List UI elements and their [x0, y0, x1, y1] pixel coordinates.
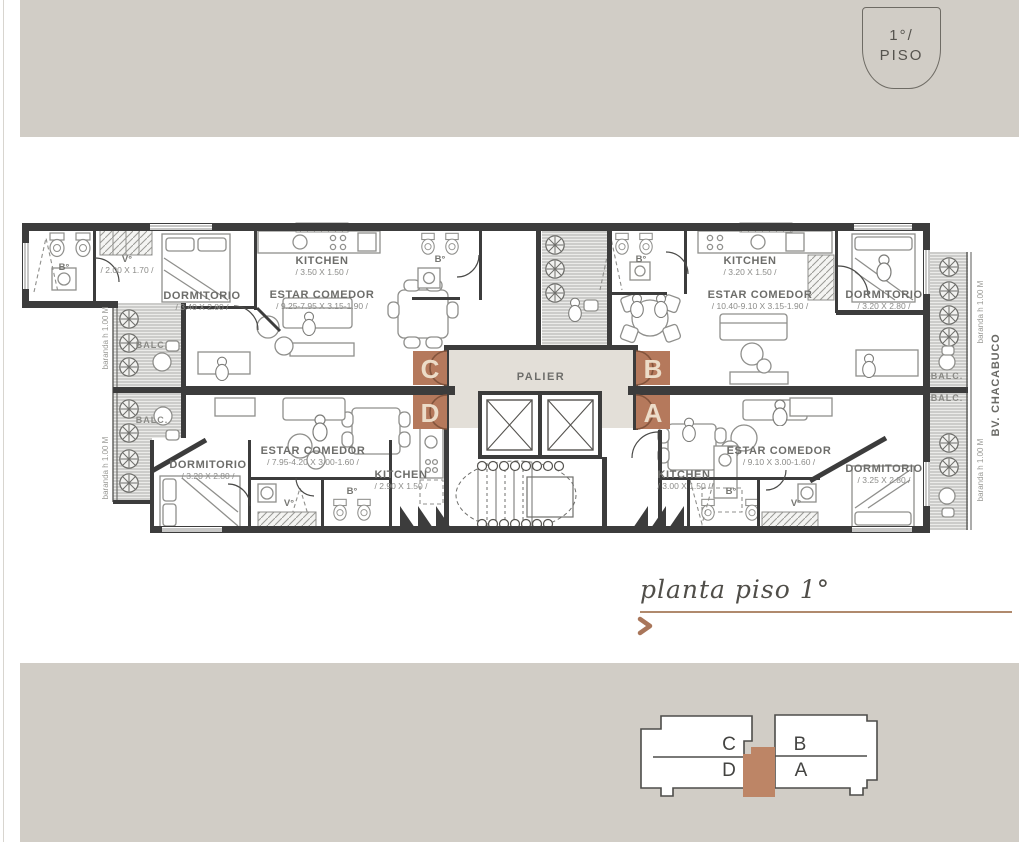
balc-label-left-bottom: BALC. [136, 415, 169, 425]
unit-c-living-label: ESTAR COMEDOR [270, 289, 375, 301]
unit-c-bath2-label: B° [435, 254, 446, 265]
unit-c-vestibule-dims: / 2.00 X 1.70 / [101, 265, 155, 275]
unit-b-living-label: ESTAR COMEDOR [708, 289, 813, 301]
unit-a-kitchen-label: KITCHEN [657, 469, 710, 481]
unit-b-kitchen-dims: / 3.20 X 1.50 / [724, 267, 778, 277]
floor-plan-drawing: PALIER [0, 0, 1019, 842]
elevators [478, 391, 602, 457]
unit-d-bath-label: B° [347, 486, 358, 497]
unit-c-letter: C [421, 354, 440, 384]
unit-b-living-dims: / 10.40-9.10 X 3.15-1.90 / [712, 301, 809, 311]
unit-b-bedroom-label: DORMITORIO [845, 289, 922, 301]
balc-label-left-top: BALC. [136, 340, 169, 350]
unit-b-bath-label: B° [636, 254, 647, 265]
left-balcony [113, 303, 184, 502]
key-plan-core-square [743, 747, 775, 797]
unit-d-living-dims: / 7.95-4.20 X 3.00-1.60 / [267, 457, 359, 467]
unit-c-bedroom-dims: / 3.40 X 2.80 / [176, 302, 230, 312]
caption-underline [640, 611, 1012, 613]
street-name-label: BV. CHACABUCO [990, 334, 1002, 437]
balc-label-right-top: BALC. [931, 371, 964, 381]
unit-a-bedroom-dims: / 3.25 X 2.80 / [858, 475, 912, 485]
unit-a-vestibule-label: V° [791, 498, 801, 509]
unit-c-vestibule-label: V° [122, 254, 132, 265]
center-terrace [542, 231, 608, 345]
louver-a [762, 512, 818, 528]
unit-a-bath-label: B° [726, 486, 737, 497]
unit-a-bedroom-label: DORMITORIO [845, 463, 922, 475]
key-plan: C D B A [641, 715, 877, 797]
unit-a-kitchen-dims: / 3.00 X 1.50 / [658, 481, 712, 491]
unit-d-bedroom-dims: / 3.20 X 2.80 / [182, 471, 236, 481]
unit-d-letter: D [421, 398, 440, 428]
unit-d-kitchen-dims: / 2.90 X 1.50 / [375, 481, 429, 491]
unit-c-bedroom-label: DORMITORIO [163, 290, 240, 302]
louver-d [258, 512, 316, 528]
unit-c-kitchen-dims: / 3.50 X 1.50 / [296, 267, 350, 277]
unit-a-living-label: ESTAR COMEDOR [727, 445, 832, 457]
balc-label-right-bottom: BALC. [931, 393, 964, 403]
key-plan-letter-a: A [795, 760, 808, 781]
baranda-label-right-bottom: baranda h 1.00 M [976, 438, 985, 501]
key-plan-letter-c: C [722, 734, 736, 755]
unit-c-kitchen-label: KITCHEN [295, 255, 348, 267]
plan-caption: planta piso 1° [640, 575, 1019, 604]
baranda-label-left-top: baranda h 1.00 M [101, 306, 110, 369]
caption-arrow-icon [637, 616, 655, 636]
staircase [456, 461, 576, 529]
unit-b-letter: B [644, 354, 663, 384]
unit-d-bedroom-label: DORMITORIO [169, 459, 246, 471]
unit-d-kitchen-label: KITCHEN [374, 469, 427, 481]
palier-label: PALIER [517, 371, 566, 383]
unit-b-kitchen-label: KITCHEN [723, 255, 776, 267]
unit-a-letter: A [644, 398, 663, 428]
unit-a-living-dims: / 9.10 X 3.00-1.60 / [743, 457, 816, 467]
baranda-label-right-top: baranda h 1.00 M [976, 280, 985, 343]
unit-d-vestibule-label: V° [284, 498, 294, 509]
key-plan-letter-b: B [794, 734, 807, 755]
unit-c-bath-label: B° [59, 262, 70, 273]
unit-c-living-dims: / 9.25-7.95 X 3.15-1.90 / [276, 301, 368, 311]
unit-b-bedroom-dims: / 3.20 X 2.80 / [858, 301, 912, 311]
baranda-label-left-bottom: baranda h 1.00 M [101, 436, 110, 499]
key-plan-letter-d: D [722, 760, 736, 781]
unit-d-living-label: ESTAR COMEDOR [261, 445, 366, 457]
